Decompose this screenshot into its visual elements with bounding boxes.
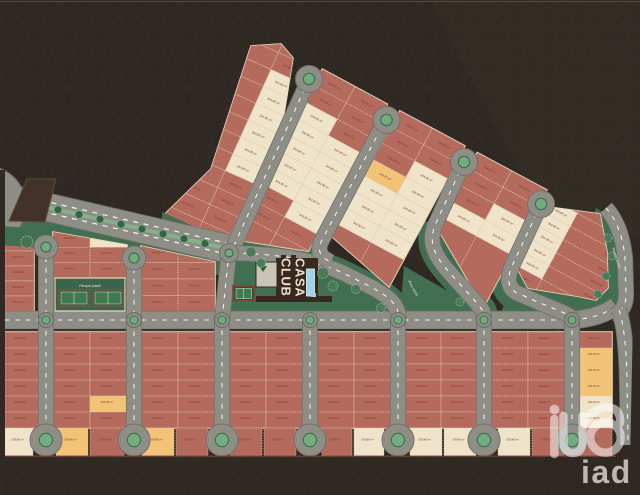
svg-text:Parque pádel: Parque pádel [79,284,101,288]
svg-text:344.00 m²: 344.00 m² [101,352,113,356]
svg-text:344.00 m²: 344.00 m² [152,352,164,356]
svg-text:344.00 m²: 344.00 m² [539,352,551,356]
svg-text:344.00 m²: 344.00 m² [12,285,24,289]
svg-text:344.00 m²: 344.00 m² [415,384,427,388]
svg-text:344.00 m²: 344.00 m² [64,400,76,404]
svg-text:344.00 m²: 344.00 m² [415,352,427,356]
svg-text:344.00 m²: 344.00 m² [415,400,427,404]
svg-text:344.00 m²: 344.00 m² [14,336,26,340]
svg-text:578.86 m²: 578.86 m² [184,438,196,442]
svg-text:344.00 m²: 344.00 m² [189,300,201,304]
svg-text:344.00 m²: 344.00 m² [64,368,76,372]
svg-text:344.00 m²: 344.00 m² [189,283,201,287]
svg-text:344.00 m²: 344.00 m² [101,336,113,340]
svg-text:344.00 m²: 344.00 m² [14,368,26,372]
svg-text:344.00 m²: 344.00 m² [451,352,463,356]
svg-text:344.00 m²: 344.00 m² [502,336,514,340]
svg-text:344.00 m²: 344.00 m² [539,336,551,340]
svg-text:344.00 m²: 344.00 m² [189,384,201,388]
svg-text:578.86 m²: 578.86 m² [452,438,464,442]
svg-text:344.00 m²: 344.00 m² [189,400,201,404]
svg-text:344.00 m²: 344.00 m² [14,400,26,404]
svg-text:344.00 m²: 344.00 m² [277,384,289,388]
svg-text:578.86 m²: 578.86 m² [506,438,518,442]
svg-text:344.00 m²: 344.00 m² [64,336,76,340]
svg-text:344.00 m²: 344.00 m² [14,384,26,388]
svg-text:578.86 m²: 578.86 m² [329,438,341,442]
svg-text:344.00 m²: 344.00 m² [277,352,289,356]
svg-text:578.86 m²: 578.86 m² [150,438,162,442]
svg-text:344.00 m²: 344.00 m² [152,300,164,304]
svg-text:344.00 m²: 344.00 m² [328,368,340,372]
svg-text:344.00 m²: 344.00 m² [451,368,463,372]
svg-text:344.00 m²: 344.00 m² [588,400,600,404]
svg-text:344.00 m²: 344.00 m² [240,416,252,420]
svg-text:344.00 m²: 344.00 m² [502,416,514,420]
svg-text:344.00 m²: 344.00 m² [328,384,340,388]
svg-text:578.86 m²: 578.86 m² [64,438,76,442]
svg-text:344.00 m²: 344.00 m² [502,352,514,356]
svg-text:344.00 m²: 344.00 m² [152,368,164,372]
svg-text:344.00 m²: 344.00 m² [277,416,289,420]
svg-text:344.00 m²: 344.00 m² [101,400,113,404]
svg-text:344.00 m²: 344.00 m² [451,384,463,388]
svg-text:344.00 m²: 344.00 m² [152,283,164,287]
svg-text:344.00 m²: 344.00 m² [101,368,113,372]
svg-text:344.00 m²: 344.00 m² [101,384,113,388]
svg-text:344.00 m²: 344.00 m² [415,368,427,372]
svg-text:344.00 m²: 344.00 m² [328,400,340,404]
svg-text:344.00 m²: 344.00 m² [502,400,514,404]
svg-text:344.00 m²: 344.00 m² [64,236,76,240]
svg-text:344.00 m²: 344.00 m² [365,352,377,356]
svg-text:344.00 m²: 344.00 m² [539,416,551,420]
svg-text:344.00 m²: 344.00 m² [451,416,463,420]
svg-text:578.86 m²: 578.86 m² [361,438,373,442]
svg-text:344.00 m²: 344.00 m² [189,416,201,420]
svg-text:344.00 m²: 344.00 m² [328,336,340,340]
svg-text:344.00 m²: 344.00 m² [415,416,427,420]
svg-text:344.00 m²: 344.00 m² [451,400,463,404]
svg-text:344.00 m²: 344.00 m² [64,384,76,388]
svg-text:344.00 m²: 344.00 m² [152,416,164,420]
svg-text:344.00 m²: 344.00 m² [415,336,427,340]
svg-text:344.00 m²: 344.00 m² [64,352,76,356]
svg-text:iad: iad [581,454,632,490]
svg-text:344.00 m²: 344.00 m² [64,251,76,255]
svg-text:344.00 m²: 344.00 m² [588,368,600,372]
svg-text:344.00 m²: 344.00 m² [539,384,551,388]
svg-text:344.00 m²: 344.00 m² [277,336,289,340]
svg-text:344.00 m²: 344.00 m² [451,336,463,340]
svg-text:344.00 m²: 344.00 m² [240,352,252,356]
svg-text:344.00 m²: 344.00 m² [12,255,24,259]
svg-text:344.00 m²: 344.00 m² [328,416,340,420]
svg-text:344.00 m²: 344.00 m² [502,384,514,388]
svg-text:344.00 m²: 344.00 m² [64,267,76,271]
svg-text:CLUB: CLUB [279,258,294,297]
svg-text:344.00 m²: 344.00 m² [152,267,164,271]
svg-text:344.00 m²: 344.00 m² [588,384,600,388]
svg-text:578.86 m²: 578.86 m² [238,438,250,442]
svg-text:344.00 m²: 344.00 m² [12,300,24,304]
svg-text:344.00 m²: 344.00 m² [240,400,252,404]
svg-text:578.86 m²: 578.86 m² [99,438,111,442]
svg-text:344.00 m²: 344.00 m² [365,336,377,340]
svg-text:344.00 m²: 344.00 m² [12,270,24,274]
svg-text:344.00 m²: 344.00 m² [189,368,201,372]
svg-text:344.00 m²: 344.00 m² [64,416,76,420]
svg-text:344.00 m²: 344.00 m² [189,267,201,271]
svg-text:344.00 m²: 344.00 m² [152,250,164,254]
svg-text:344.00 m²: 344.00 m² [240,368,252,372]
svg-text:344.00 m²: 344.00 m² [588,352,600,356]
svg-text:344.00 m²: 344.00 m² [152,384,164,388]
svg-text:344.00 m²: 344.00 m² [277,368,289,372]
svg-text:344.00 m²: 344.00 m² [14,352,26,356]
svg-text:344.00 m²: 344.00 m² [365,400,377,404]
svg-text:344.00 m²: 344.00 m² [14,416,26,420]
svg-text:344.00 m²: 344.00 m² [365,416,377,420]
svg-text:578.86 m²: 578.86 m² [272,438,284,442]
svg-text:344.00 m²: 344.00 m² [101,416,113,420]
svg-text:344.00 m²: 344.00 m² [152,336,164,340]
svg-text:344.00 m²: 344.00 m² [365,384,377,388]
svg-text:CASA: CASA [293,258,308,297]
svg-text:344.00 m²: 344.00 m² [240,336,252,340]
svg-text:344.00 m²: 344.00 m² [365,368,377,372]
svg-text:344.00 m²: 344.00 m² [328,352,340,356]
svg-text:578.86 m²: 578.86 m² [12,438,24,442]
svg-text:344.00 m²: 344.00 m² [189,336,201,340]
svg-text:344.00 m²: 344.00 m² [101,267,113,271]
svg-text:344.00 m²: 344.00 m² [101,251,113,255]
svg-text:344.00 m²: 344.00 m² [277,400,289,404]
svg-text:344.00 m²: 344.00 m² [240,384,252,388]
svg-text:344.00 m²: 344.00 m² [152,400,164,404]
svg-text:344.00 m²: 344.00 m² [588,336,600,340]
svg-text:344.00 m²: 344.00 m² [539,368,551,372]
svg-text:344.00 m²: 344.00 m² [502,368,514,372]
svg-text:344.00 m²: 344.00 m² [189,352,201,356]
svg-text:578.86 m²: 578.86 m² [418,438,430,442]
svg-text:344.00 m²: 344.00 m² [539,400,551,404]
